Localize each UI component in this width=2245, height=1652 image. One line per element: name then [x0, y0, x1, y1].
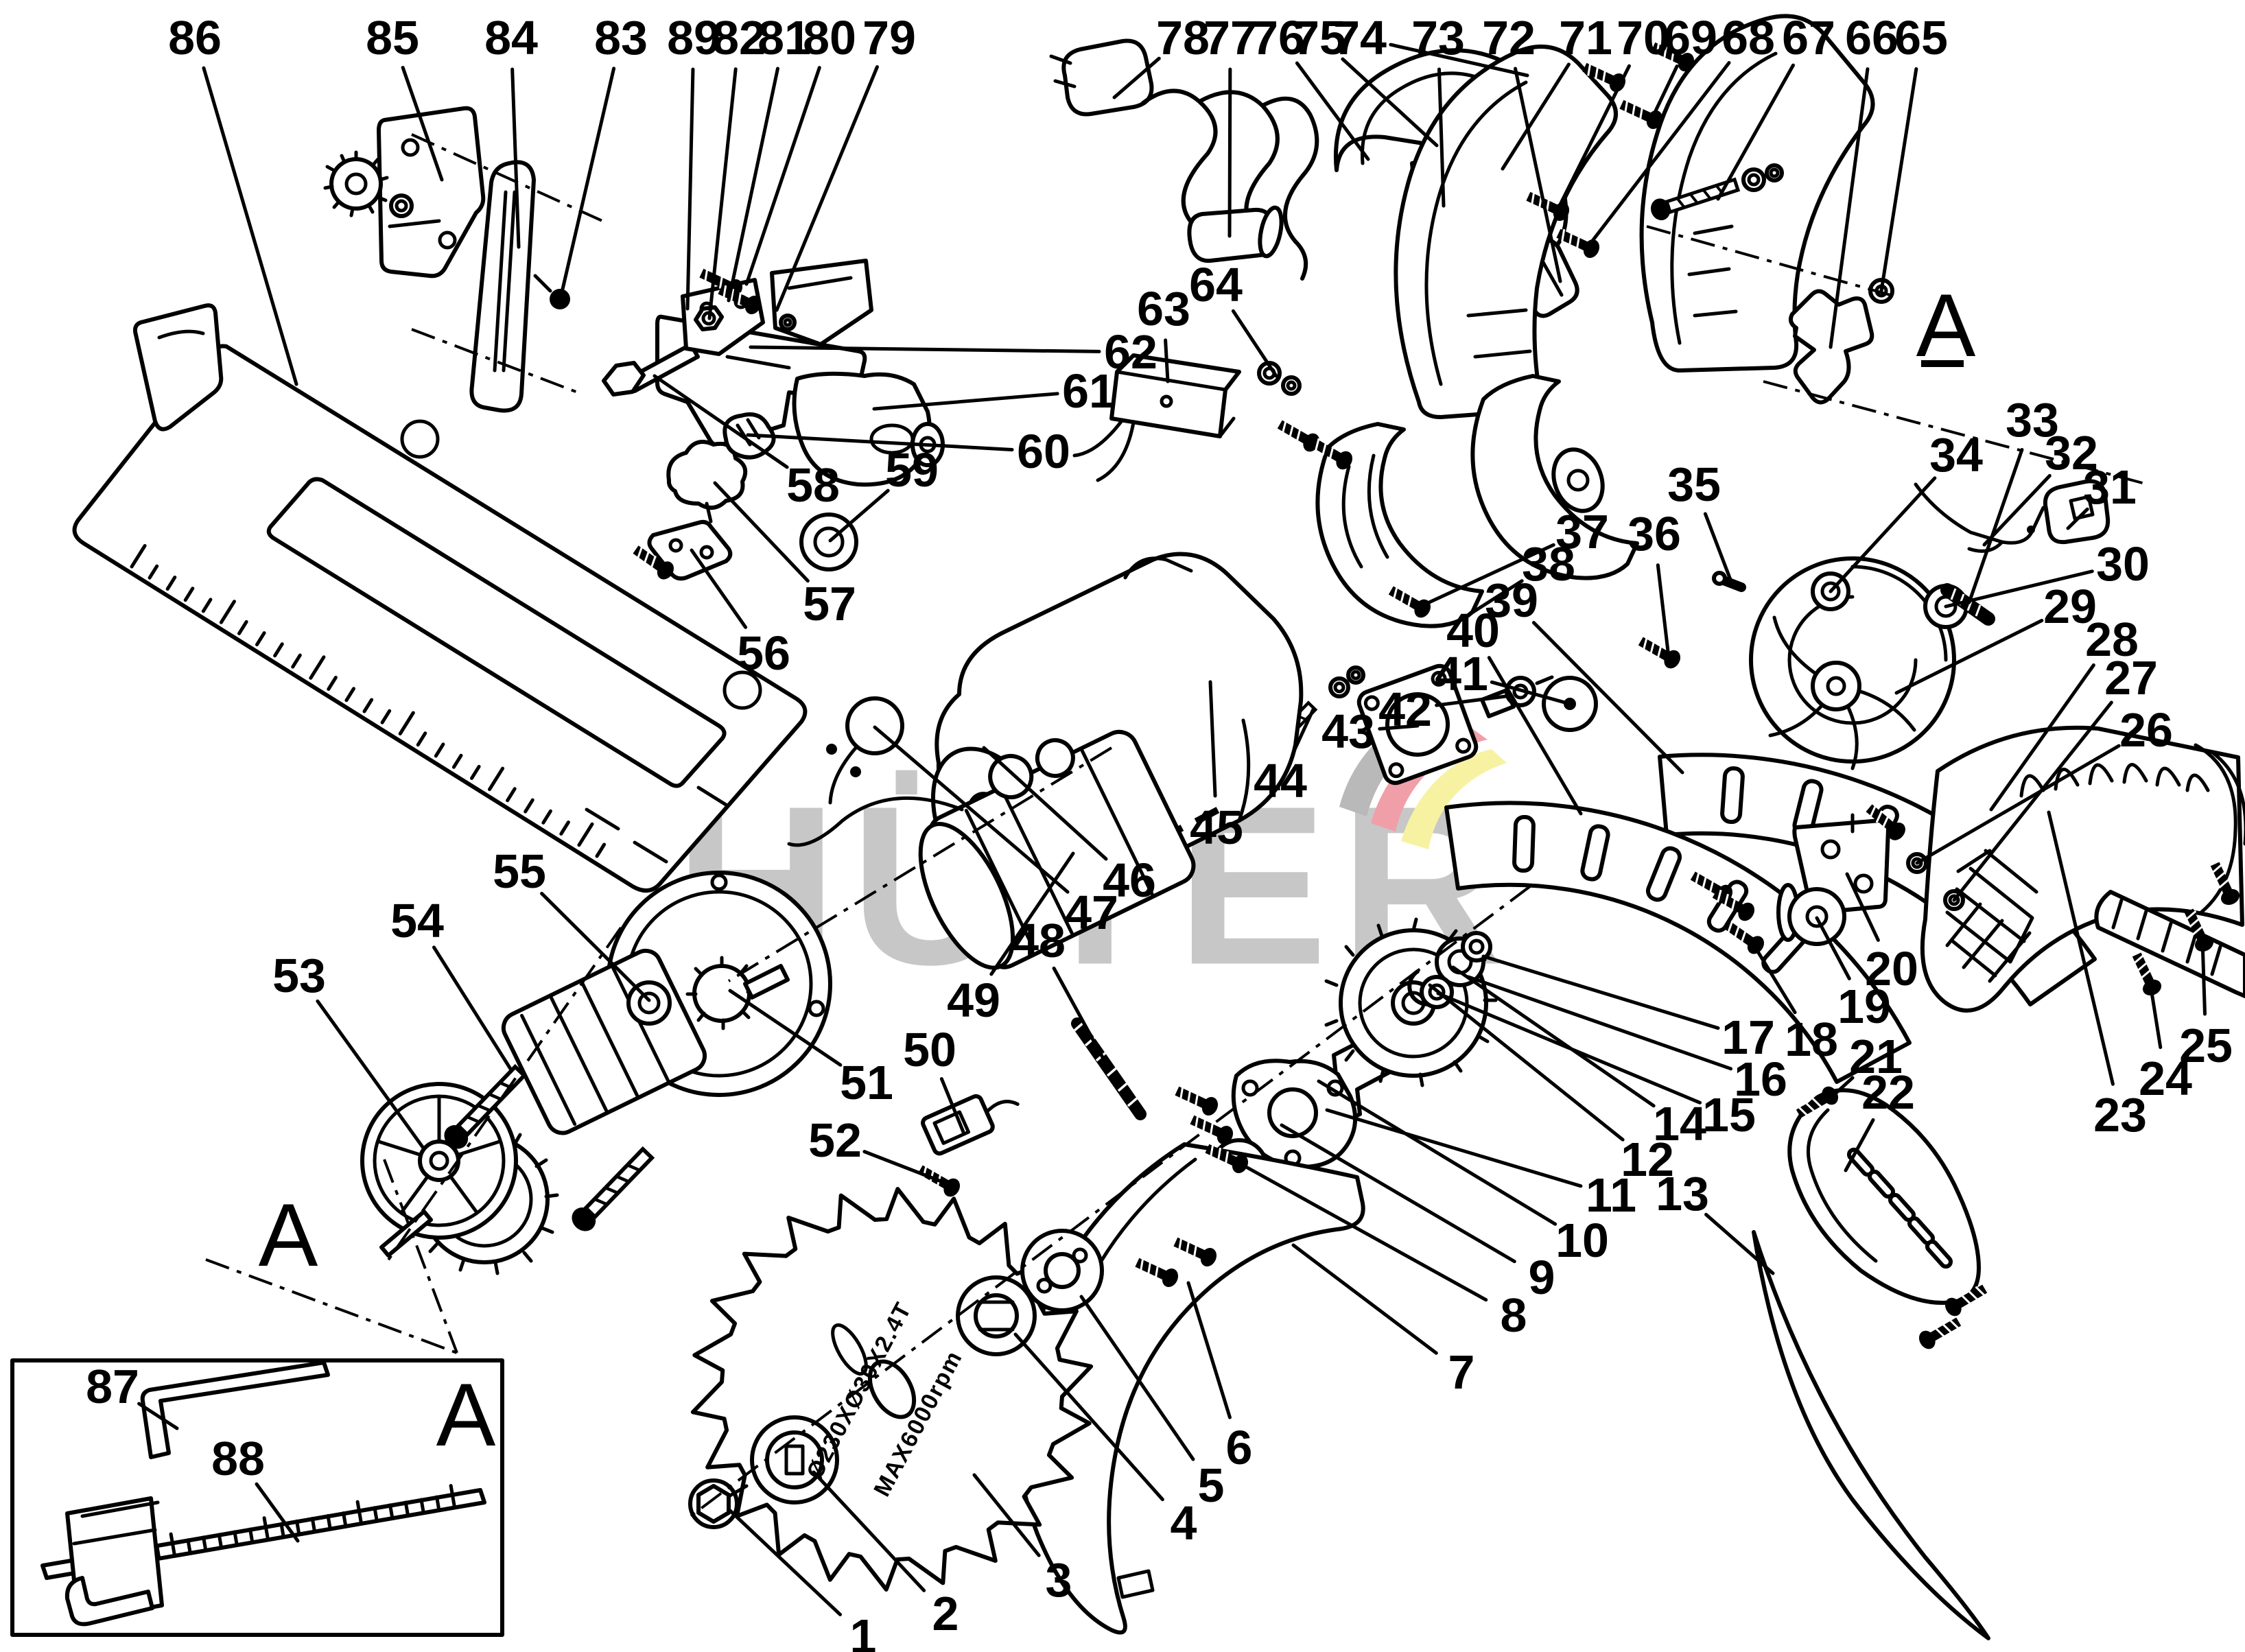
part-77-cord-guard	[1189, 206, 1285, 261]
part-label-60: 60	[1017, 425, 1070, 478]
part-label-57: 57	[803, 577, 856, 630]
leader-line-77	[1230, 69, 1230, 236]
diagram-page: HÜTER	[0, 0, 2245, 1652]
part-label-35: 35	[1667, 458, 1721, 511]
part-label-48: 48	[1012, 914, 1066, 967]
section-marker-a-0: A	[1916, 275, 1976, 375]
part-label-25: 25	[2179, 1019, 2233, 1072]
part-label-1: 1	[850, 1609, 877, 1652]
part-label-58: 58	[786, 458, 840, 512]
part-label-84: 84	[484, 11, 538, 64]
leader-line-25	[2202, 940, 2205, 1014]
part-label-68: 68	[1721, 11, 1775, 64]
part-label-66: 66	[1845, 11, 1899, 64]
part-label-44: 44	[1254, 754, 1307, 807]
part-label-45: 45	[1190, 801, 1243, 854]
part-label-56: 56	[737, 626, 790, 680]
part-label-14: 14	[1653, 1097, 1706, 1150]
part-label-18: 18	[1785, 1013, 1838, 1066]
part-label-71: 71	[1559, 11, 1612, 64]
part-label-64: 64	[1189, 258, 1243, 311]
part-label-3: 3	[1046, 1553, 1072, 1607]
part-label-6: 6	[1226, 1421, 1253, 1474]
part-label-34: 34	[1929, 428, 1983, 482]
part-label-70: 70	[1617, 11, 1670, 64]
part-label-5: 5	[1198, 1459, 1225, 1512]
section-marker-a-1: A	[259, 1185, 318, 1285]
part-label-59: 59	[885, 443, 939, 497]
part-label-29: 29	[2043, 580, 2097, 633]
part-label-87: 87	[86, 1360, 139, 1413]
part-label-30: 30	[2096, 537, 2150, 591]
part-label-13: 13	[1656, 1167, 1709, 1220]
part-label-77: 77	[1203, 11, 1257, 64]
part-label-83: 83	[594, 11, 648, 64]
part-label-86: 86	[168, 11, 222, 64]
part-label-8: 8	[1501, 1288, 1527, 1342]
part-label-76: 76	[1251, 11, 1305, 64]
part-label-9: 9	[1529, 1251, 1555, 1304]
part-label-67: 67	[1782, 11, 1835, 64]
part-label-33: 33	[2006, 393, 2059, 447]
exploded-diagram-canvas: HÜTER	[0, 0, 2245, 1652]
part-label-88: 88	[211, 1432, 265, 1485]
part-label-17: 17	[1721, 1011, 1775, 1064]
part-label-69: 69	[1664, 11, 1717, 64]
part-label-79: 79	[862, 11, 916, 64]
part-label-42: 42	[1378, 683, 1432, 736]
part-label-50: 50	[903, 1023, 956, 1076]
part-label-73: 73	[1411, 11, 1465, 64]
part-label-53: 53	[272, 949, 326, 1002]
part-label-26: 26	[2119, 703, 2173, 757]
part-label-78: 78	[1156, 11, 1210, 64]
part-label-65: 65	[1894, 11, 1948, 64]
part-label-36: 36	[1627, 507, 1681, 560]
part-label-4: 4	[1171, 1496, 1197, 1550]
part-label-41: 41	[1435, 647, 1488, 700]
part-label-54: 54	[390, 894, 444, 947]
part-19-roller	[1778, 885, 1844, 944]
part-label-20: 20	[1865, 942, 1918, 995]
part-label-22: 22	[1861, 1065, 1915, 1119]
part-label-7: 7	[1448, 1345, 1475, 1399]
part-label-63: 63	[1137, 282, 1190, 335]
part-label-47: 47	[1065, 886, 1118, 939]
part-label-85: 85	[366, 11, 419, 64]
part-label-2: 2	[932, 1587, 959, 1640]
leader-line-63	[1166, 340, 1168, 381]
part-5-washer-disc	[1022, 1231, 1102, 1310]
part-label-52: 52	[808, 1113, 862, 1167]
part-label-43: 43	[1321, 705, 1375, 758]
part-label-49: 49	[947, 973, 1000, 1027]
section-marker-a-2: A	[436, 1365, 496, 1465]
part-label-55: 55	[493, 845, 546, 898]
part-label-51: 51	[840, 1056, 893, 1109]
part-label-72: 72	[1482, 11, 1536, 64]
part-label-89: 89	[667, 11, 720, 64]
